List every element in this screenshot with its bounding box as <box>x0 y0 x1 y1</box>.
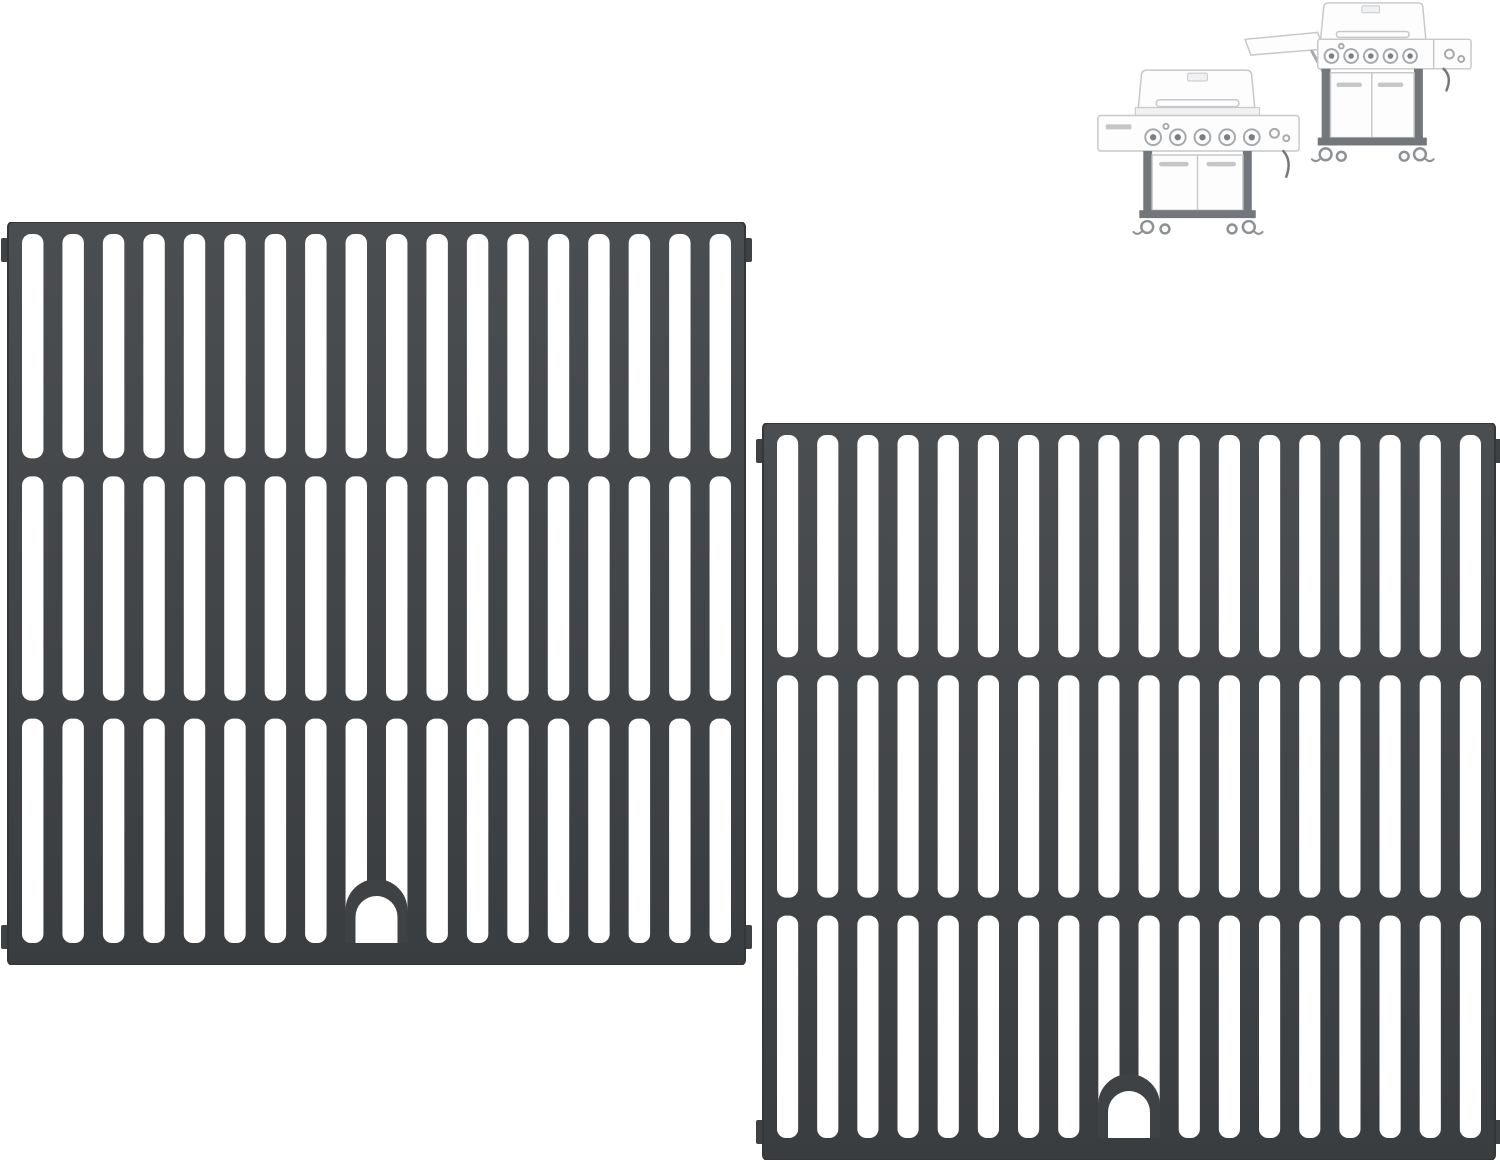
grill-a-nameplate <box>1188 73 1208 81</box>
grill-b-nameplate <box>1362 6 1380 13</box>
grate-svg-left <box>0 222 754 965</box>
cast-iron-grate-left <box>0 222 754 965</box>
grate-svg-right <box>754 423 1500 1160</box>
grill-b-side-shelf <box>1245 32 1324 72</box>
product-image-canvas <box>0 0 1500 1164</box>
grill-a-cart <box>1139 151 1255 218</box>
grill-b-lid-handle <box>1336 31 1409 37</box>
grill-b-cart <box>1318 69 1427 146</box>
grill-b-lid <box>1321 3 1426 39</box>
cast-iron-grate-right <box>754 423 1500 1160</box>
grill-illustration-right <box>1240 0 1478 172</box>
grill-a-lid-handle <box>1156 100 1239 107</box>
grill-b-casters <box>1312 148 1434 161</box>
grill-b-hose <box>1444 69 1449 91</box>
grill-a-casters <box>1133 221 1262 234</box>
grill-b-control-panel <box>1318 39 1471 68</box>
grill-b-drawing <box>1240 0 1478 172</box>
